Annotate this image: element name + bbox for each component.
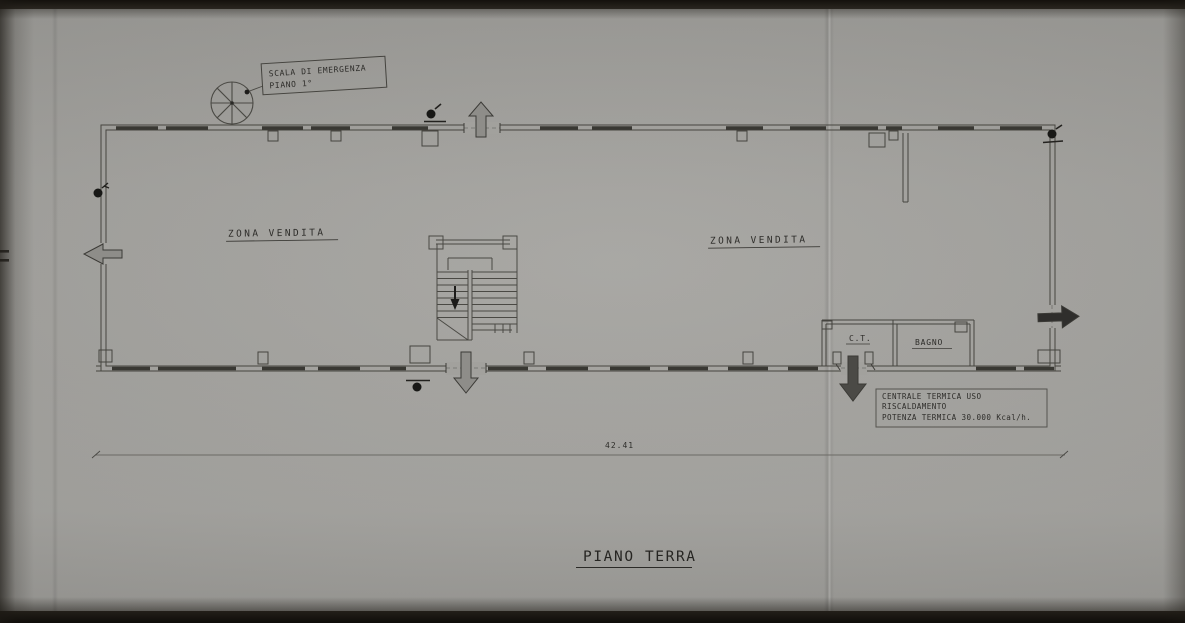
sales-zone-left: ZONA VENDITA	[226, 227, 338, 241]
entrance-exit-arrows	[84, 102, 1079, 401]
building-outline	[96, 125, 1061, 371]
sales-zone-right: ZONA VENDITA	[708, 234, 820, 248]
boiler-note-line2: RISCALDAMENTO	[882, 402, 947, 411]
door-openings	[98, 122, 1058, 375]
scanned-floor-plan: SCALA DI EMERGENZA PIANO 1°	[0, 0, 1185, 623]
wall-pilaster-segments	[112, 128, 1054, 369]
emergency-stair-label-line1: SCALA DI EMERGENZA	[268, 63, 366, 78]
dot-marker-icon	[424, 104, 446, 122]
scan-edge-top-shadow	[0, 9, 1185, 19]
sales-zone-left-label: ZONA VENDITA	[228, 227, 326, 239]
spiral-staircase-icon	[211, 82, 263, 124]
sheet-title-label: PIANO TERRA	[583, 549, 697, 565]
scan-edge-bottom-shadow	[0, 597, 1185, 611]
dimension-line	[92, 451, 1068, 458]
sales-zone-right-label: ZONA VENDITA	[710, 234, 808, 246]
dot-marker-icon	[406, 381, 430, 392]
emergency-stair-label-box: SCALA DI EMERGENZA PIANO 1°	[261, 56, 387, 95]
door-jamb-squares	[99, 131, 1060, 364]
bathroom-label: BAGNO	[915, 338, 943, 347]
service-rooms	[822, 320, 974, 366]
staircase-icon	[429, 236, 517, 340]
boiler-note-line3: POTENZA TERMICA 30.000 Kcal/h.	[882, 413, 1031, 422]
arrow-left-icon	[84, 244, 122, 264]
door-opening-ticks	[446, 123, 875, 373]
ct-room-label: C.T.	[849, 334, 871, 343]
emergency-stair-label-line2: PIANO 1°	[269, 79, 313, 91]
boiler-note-line1: CENTRALE TERMICA USO	[882, 392, 981, 401]
arrow-right-icon	[1038, 305, 1080, 328]
dimension-label: 42.41	[605, 441, 634, 450]
dot-marker-icon	[1043, 125, 1063, 143]
scan-edge-bottom	[0, 611, 1185, 623]
sheet-title: PIANO TERRA	[576, 549, 697, 568]
floor-plan-drawing: SCALA DI EMERGENZA PIANO 1°	[0, 0, 1185, 623]
scan-edge-left	[0, 0, 34, 623]
door-opening-threshold-lines	[103, 128, 1052, 368]
scan-edge-top	[0, 0, 1185, 9]
boiler-note-box: CENTRALE TERMICA USO RISCALDAMENTO POTEN…	[876, 389, 1047, 427]
scan-edge-right	[1163, 0, 1185, 623]
interior-partition	[903, 133, 908, 202]
